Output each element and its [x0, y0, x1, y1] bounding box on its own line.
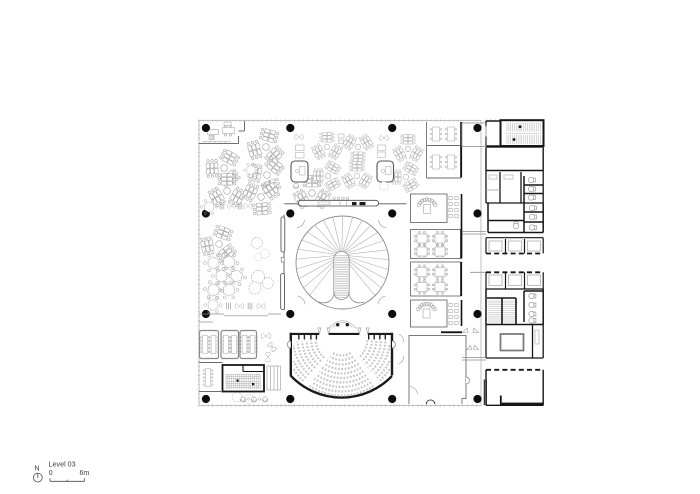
svg-text:N: N	[35, 466, 40, 473]
svg-text:6m: 6m	[80, 470, 90, 477]
svg-text:0: 0	[49, 470, 53, 477]
svg-text:Level 03: Level 03	[49, 460, 76, 469]
